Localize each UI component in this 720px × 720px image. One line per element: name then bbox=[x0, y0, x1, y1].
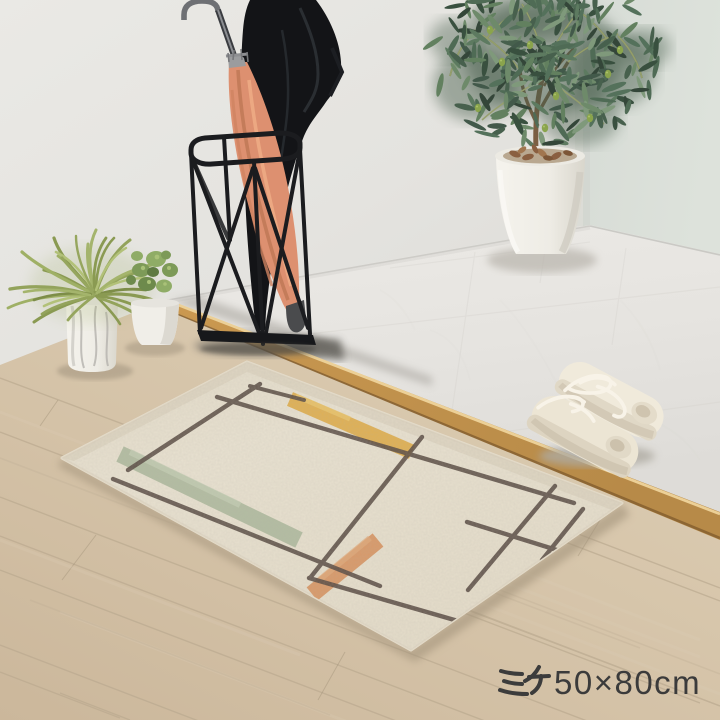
svg-text:50×80cm: 50×80cm bbox=[554, 664, 701, 701]
